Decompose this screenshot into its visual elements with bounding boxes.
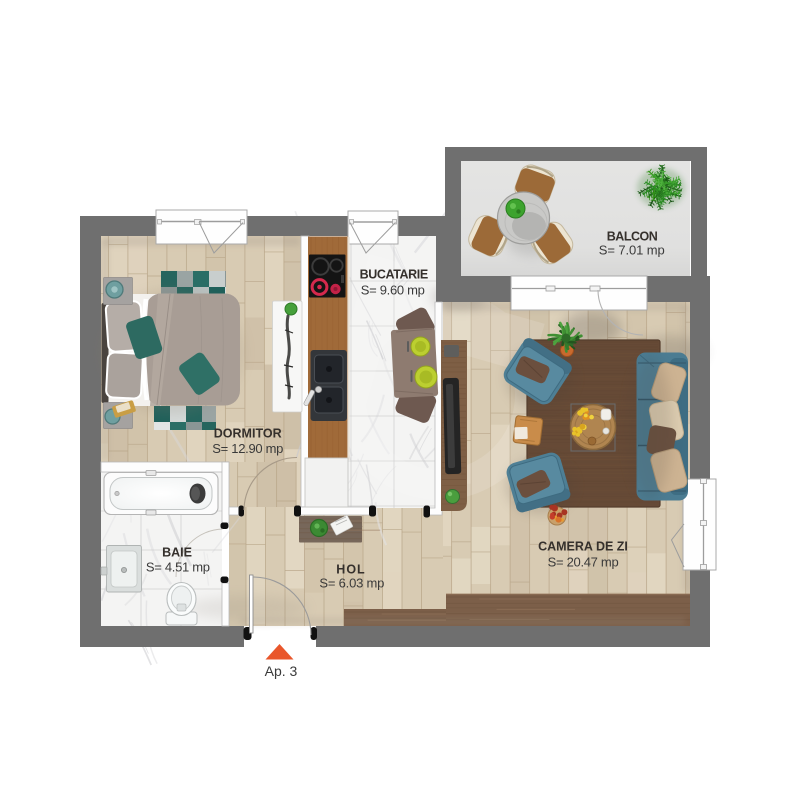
svg-text:BALCON: BALCON <box>607 230 658 244</box>
svg-text:S= 6.03 mp: S= 6.03 mp <box>319 576 384 591</box>
svg-text:S= 7.01 mp: S= 7.01 mp <box>599 243 665 258</box>
svg-text:DORMITOR: DORMITOR <box>214 427 282 441</box>
svg-text:S= 12.90 mp: S= 12.90 mp <box>212 441 283 456</box>
svg-text:S= 20.47 mp: S= 20.47 mp <box>548 555 619 570</box>
svg-text:BUCATARIE: BUCATARIE <box>360 268 428 282</box>
svg-text:BAIE: BAIE <box>162 546 192 560</box>
svg-text:CAMERA DE ZI: CAMERA DE ZI <box>538 540 628 554</box>
svg-text:S= 9.60 mp: S= 9.60 mp <box>361 283 425 298</box>
svg-text:S= 4.51 mp: S= 4.51 mp <box>146 560 210 575</box>
svg-text:HOL: HOL <box>336 563 365 577</box>
svg-text:Ap. 3: Ap. 3 <box>265 663 298 679</box>
